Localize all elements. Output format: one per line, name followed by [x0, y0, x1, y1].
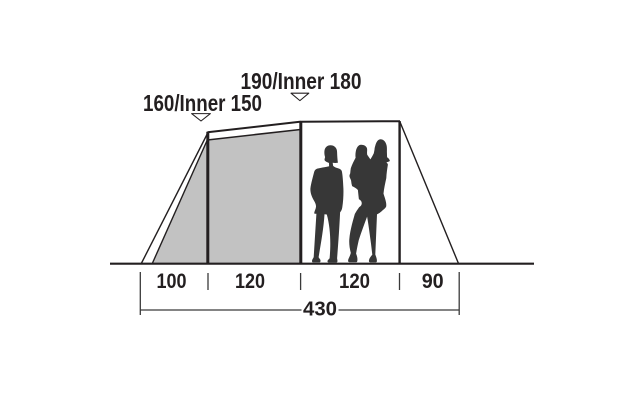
svg-text:120: 120: [339, 269, 370, 293]
svg-text:120: 120: [235, 269, 265, 293]
svg-text:90: 90: [422, 269, 444, 293]
svg-text:160/Inner 150: 160/Inner 150: [143, 90, 262, 116]
svg-text:100: 100: [157, 269, 187, 293]
svg-text:430: 430: [303, 299, 337, 321]
